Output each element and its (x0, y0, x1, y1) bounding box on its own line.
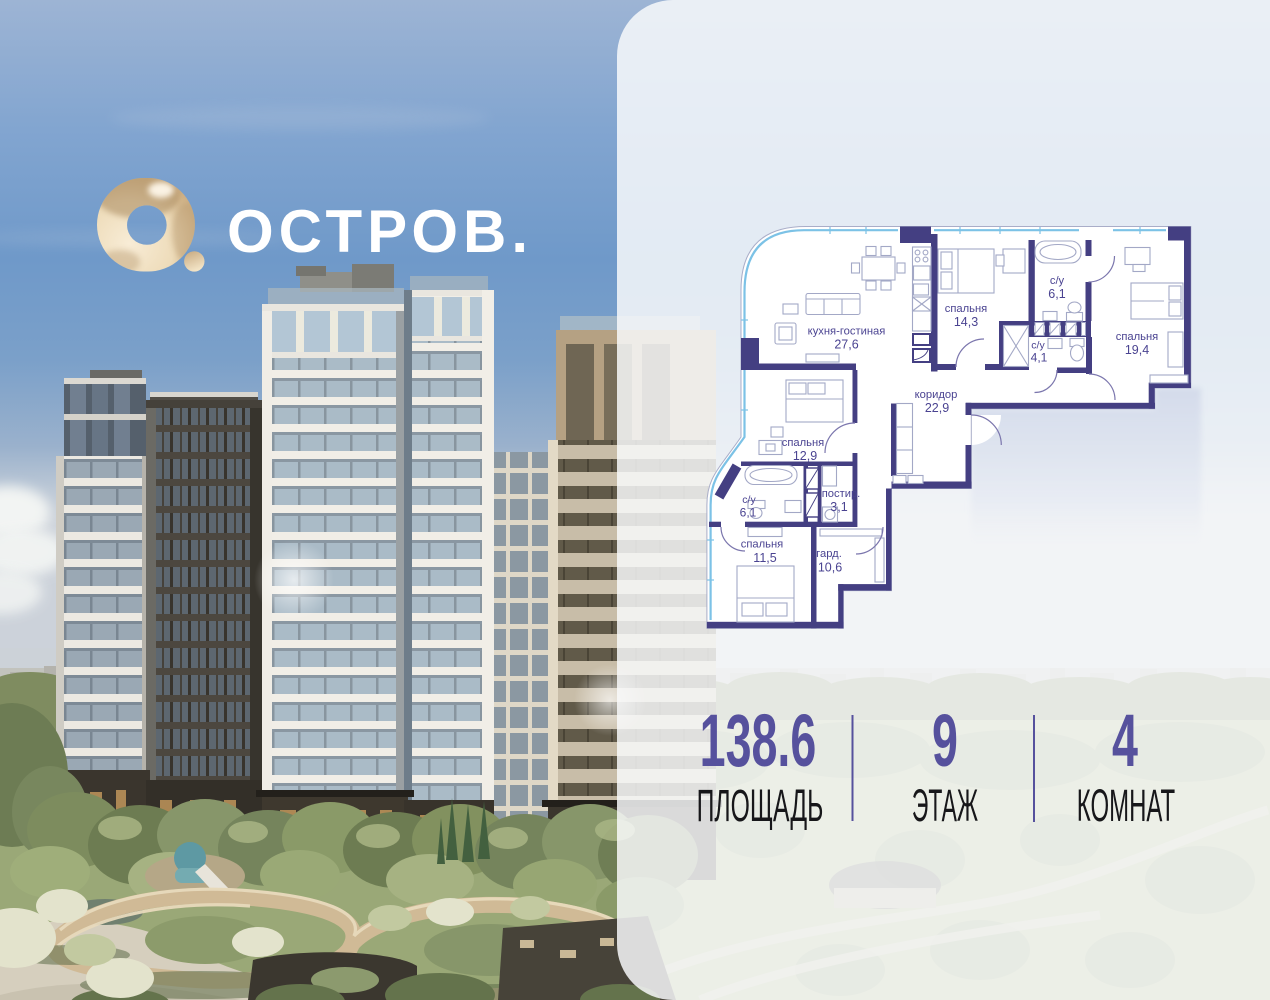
svg-text:9: 9 (932, 700, 958, 783)
svg-text:коридор: коридор (915, 389, 958, 401)
svg-text:гард.: гард. (816, 548, 842, 560)
svg-text:3,1: 3,1 (830, 500, 847, 514)
svg-text:12,9: 12,9 (793, 449, 817, 463)
svg-text:ОСТРОВ.: ОСТРОВ. (227, 198, 533, 265)
svg-text:постир.: постир. (822, 488, 861, 500)
svg-text:11,5: 11,5 (753, 551, 776, 565)
svg-text:138.6: 138.6 (700, 700, 817, 783)
svg-text:27,6: 27,6 (834, 338, 858, 352)
svg-text:спальня: спальня (741, 539, 783, 551)
svg-text:спальня: спальня (782, 437, 824, 449)
svg-text:14,3: 14,3 (954, 315, 978, 329)
svg-text:спальня: спальня (945, 303, 987, 315)
svg-text:22,9: 22,9 (925, 401, 949, 415)
svg-text:4: 4 (1112, 700, 1138, 783)
svg-text:6,1: 6,1 (740, 506, 757, 520)
svg-text:кухня-гостиная: кухня-гостиная (808, 326, 886, 338)
svg-text:КОМНАТ: КОМНАТ (1077, 780, 1175, 831)
svg-text:4,1: 4,1 (1031, 351, 1048, 365)
svg-text:19,4: 19,4 (1125, 343, 1149, 357)
svg-text:ПЛОЩАДЬ: ПЛОЩАДЬ (697, 780, 824, 831)
svg-text:с/у: с/у (1050, 275, 1065, 287)
svg-text:6,1: 6,1 (1048, 287, 1065, 301)
svg-text:10,6: 10,6 (818, 561, 842, 575)
svg-text:ЭТАЖ: ЭТАЖ (912, 781, 978, 831)
svg-text:с/у: с/у (742, 494, 756, 506)
svg-text:спальня: спальня (1116, 331, 1158, 343)
